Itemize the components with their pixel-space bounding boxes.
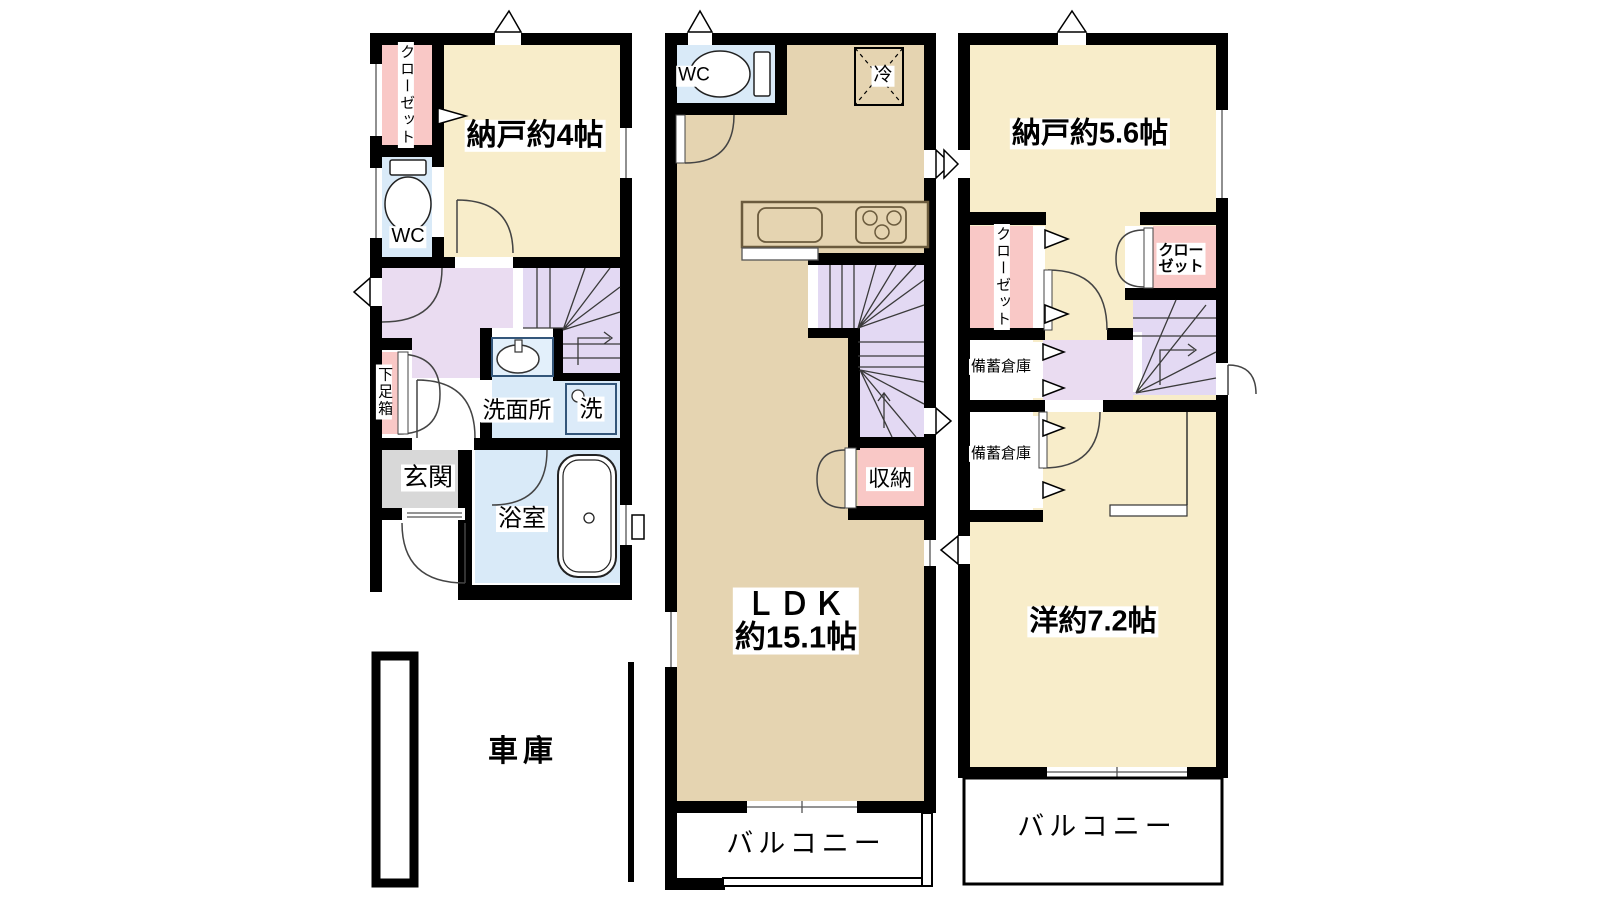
label-western-room: 洋約7.2帖 xyxy=(1027,606,1158,637)
label-ldk: ＬＤＫ 約15.1帖 xyxy=(733,588,859,655)
label-closet-3f-right: クロー ゼット xyxy=(1156,243,1205,275)
label-wc-1f: WC xyxy=(389,226,426,248)
label-closet-3f-right-l2: ゼット xyxy=(1158,259,1203,275)
room-fills xyxy=(372,45,1216,801)
label-entrance: 玄関 xyxy=(401,465,455,492)
label-closet-3f-right-l1: クロー xyxy=(1158,243,1203,259)
label-storage-56j: 納戸約5.6帖 xyxy=(1010,118,1170,149)
label-balcony-3f: バルコニー xyxy=(1015,812,1178,841)
garage-side-line xyxy=(628,662,634,882)
bathtub-icon xyxy=(558,455,616,577)
label-shoe-cabinet: 下足箱 xyxy=(376,365,392,420)
label-storage-2f: 収納 xyxy=(866,467,914,491)
label-bathroom: 浴室 xyxy=(496,506,548,532)
toilet-1f-icon xyxy=(385,160,431,231)
label-washroom: 洗面所 xyxy=(481,398,554,423)
room-stairs-2f-lower xyxy=(858,328,924,437)
label-closet-1f: クローゼット xyxy=(398,42,414,148)
label-ldk-area: 約15.1帖 xyxy=(735,621,857,654)
label-storage-4j: 納戸約4帖 xyxy=(465,120,606,152)
garage-pillar xyxy=(376,656,414,883)
floorplan-page: クローゼット 納戸約4帖 WC 下足箱 洗面所 洗 玄関 浴室 車庫 WC 冷 … xyxy=(0,0,1600,900)
label-wc-2f: WC xyxy=(676,66,712,87)
floorplan-graphic xyxy=(0,0,1600,900)
label-balcony-2f: バルコニー xyxy=(724,829,887,858)
label-refrigerator: 冷 xyxy=(871,66,894,87)
label-stockpile-2: 備蓄倉庫 xyxy=(969,446,1033,462)
label-stockpile-1: 備蓄倉庫 xyxy=(969,359,1033,375)
label-garage: 車庫 xyxy=(486,736,560,768)
label-ldk-name: ＬＤＫ xyxy=(735,588,857,621)
label-washer: 洗 xyxy=(578,397,605,422)
label-closet-3f-left: クローゼット xyxy=(994,224,1010,330)
washroom-sink-icon xyxy=(492,338,553,376)
